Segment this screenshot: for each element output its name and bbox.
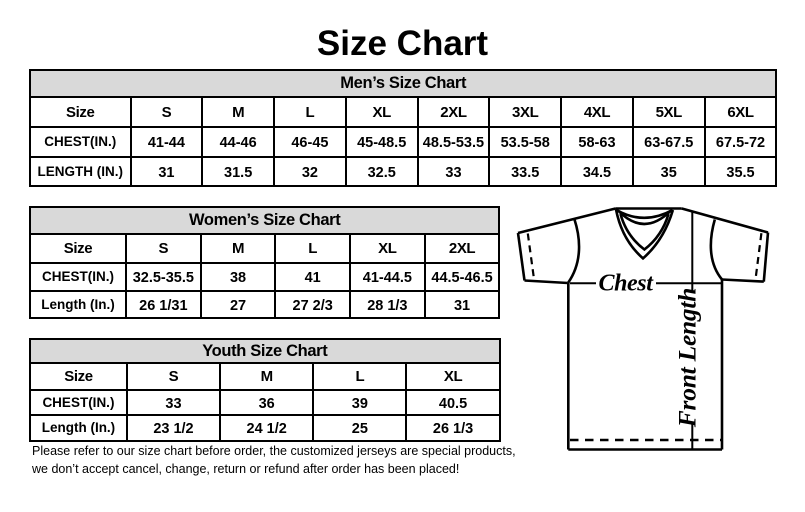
svg-text:Chest: Chest xyxy=(598,271,654,297)
svg-text:Front Length: Front Length xyxy=(674,288,702,428)
